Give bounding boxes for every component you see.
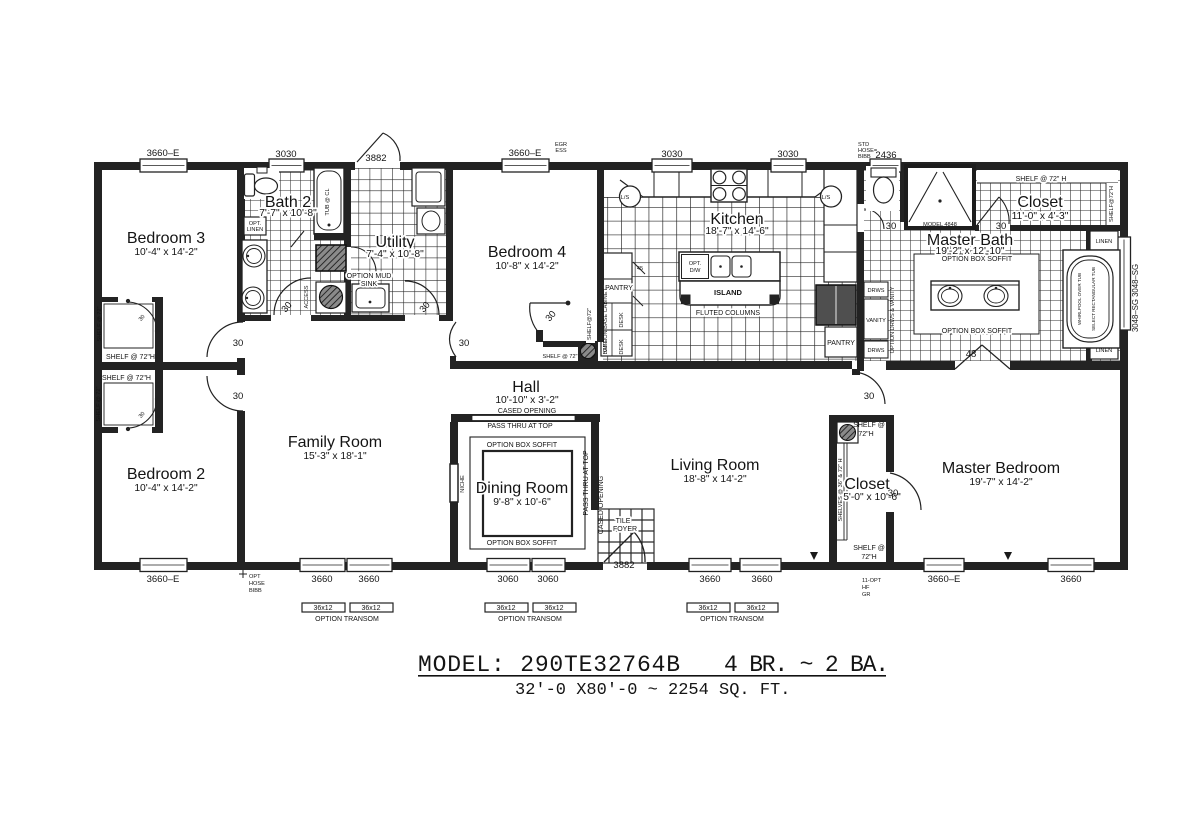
svg-text:OPTION BOX SOFFIT: OPTION BOX SOFFIT — [487, 540, 558, 547]
svg-text:OPT.: OPT. — [689, 261, 702, 267]
svg-text:MODEL 4848: MODEL 4848 — [923, 222, 957, 228]
svg-text:CASED OPENING: CASED OPENING — [498, 408, 556, 415]
svg-text:SHELF @: SHELF @ — [853, 422, 885, 429]
svg-text:NICHE: NICHE — [460, 475, 466, 493]
svg-text:7'-4" x 10'-8": 7'-4" x 10'-8" — [366, 249, 424, 260]
svg-text:SHELF @ 72": SHELF @ 72" — [96, 386, 102, 421]
svg-text:GR: GR — [862, 592, 870, 598]
svg-text:FLUTED COLUMNS: FLUTED COLUMNS — [696, 310, 761, 317]
svg-text:SHELF @ 72"H: SHELF @ 72"H — [106, 354, 155, 361]
svg-text:SELECT RECTANGULAR TUB: SELECT RECTANGULAR TUB — [1091, 267, 1096, 331]
svg-text:ISLAND: ISLAND — [714, 288, 743, 297]
svg-text:72"H: 72"H — [861, 554, 876, 561]
svg-text:BIBB: BIBB — [249, 588, 262, 594]
svg-text:L/S: L/S — [621, 195, 630, 201]
svg-text:SHELF@72"H: SHELF@72"H — [1109, 186, 1115, 222]
svg-text:MODEL: 290TE32764B: MODEL: 290TE32764B — [418, 652, 681, 678]
svg-text:3660: 3660 — [358, 574, 379, 585]
svg-text:36x12: 36x12 — [313, 605, 332, 612]
svg-text:Family Room: Family Room — [288, 434, 382, 451]
svg-text:3660–E: 3660–E — [147, 148, 180, 159]
svg-text:HF: HF — [862, 585, 870, 591]
svg-text:SHELF @ 72": SHELF @ 72" — [97, 306, 103, 341]
svg-text:BIBB: BIBB — [858, 154, 871, 160]
svg-text:Master Bedroom: Master Bedroom — [942, 460, 1060, 477]
svg-text:L/S: L/S — [822, 195, 831, 201]
svg-text:PANTRY: PANTRY — [827, 340, 855, 347]
svg-text:11'-0" x 4'-3": 11'-0" x 4'-3" — [1012, 211, 1069, 222]
svg-text:Closet: Closet — [1017, 194, 1063, 211]
svg-text:CASED OPENING: CASED OPENING — [598, 476, 605, 534]
svg-text:3030: 3030 — [661, 149, 682, 160]
svg-text:3660: 3660 — [311, 574, 332, 585]
svg-text:LINEN: LINEN — [247, 227, 263, 233]
svg-text:ESS: ESS — [555, 148, 566, 154]
svg-text:19'-7" x 14'-2": 19'-7" x 14'-2" — [969, 477, 1033, 488]
svg-text:DRWS: DRWS — [868, 348, 885, 354]
svg-text:30: 30 — [864, 391, 875, 402]
svg-text:30: 30 — [996, 221, 1007, 232]
svg-text:DRWS: DRWS — [868, 288, 885, 294]
svg-text:SHELVES @ 36" & 72" H: SHELVES @ 36" & 72" H — [838, 458, 844, 521]
svg-text:30: 30 — [233, 338, 244, 349]
svg-text:FOYER: FOYER — [613, 526, 637, 533]
svg-text:Closet: Closet — [844, 476, 890, 493]
svg-text:OPT: OPT — [249, 574, 261, 580]
svg-text:72"H: 72"H — [858, 431, 873, 438]
svg-text:OPTION BOX SOFFIT: OPTION BOX SOFFIT — [487, 442, 558, 449]
svg-text:SHELF @ 72" H: SHELF @ 72" H — [1016, 176, 1067, 183]
svg-text:32'-0 X80'-0 ~ 2254 SQ. FT.: 32'-0 X80'-0 ~ 2254 SQ. FT. — [515, 681, 790, 700]
svg-text:36x12: 36x12 — [496, 605, 515, 612]
svg-text:Dining Room: Dining Room — [476, 480, 568, 497]
svg-text:OPTION MUD: OPTION MUD — [347, 273, 392, 280]
svg-text:OPTION BOX SOFFIT: OPTION BOX SOFFIT — [942, 256, 1013, 263]
svg-text:11-OPT: 11-OPT — [862, 578, 882, 584]
svg-text:OPTION TRANSOM: OPTION TRANSOM — [315, 616, 379, 623]
svg-text:3660: 3660 — [1060, 574, 1081, 585]
svg-text:3060: 3060 — [497, 574, 518, 585]
svg-text:ACCESS: ACCESS — [304, 285, 310, 308]
svg-text:36x12: 36x12 — [544, 605, 563, 612]
svg-text:PANTRY: PANTRY — [605, 285, 633, 292]
svg-text:OPTION TRANSOM: OPTION TRANSOM — [700, 616, 764, 623]
svg-text:D/W: D/W — [690, 268, 702, 274]
svg-text:3882: 3882 — [365, 153, 386, 164]
svg-text:OPTION TRANSOM: OPTION TRANSOM — [498, 616, 562, 623]
svg-text:Hall: Hall — [512, 379, 540, 396]
svg-text:Bedroom 4: Bedroom 4 — [488, 244, 566, 261]
svg-text:36x12: 36x12 — [361, 605, 380, 612]
svg-text:3660–E: 3660–E — [928, 574, 961, 585]
svg-text:30: 30 — [888, 488, 899, 499]
svg-text:PASS THRU AT TOP: PASS THRU AT TOP — [583, 450, 590, 516]
svg-text:3882: 3882 — [613, 560, 634, 571]
svg-text:OPTION DRWS & VANITY: OPTION DRWS & VANITY — [890, 286, 896, 353]
svg-text:Bedroom 3: Bedroom 3 — [127, 230, 205, 247]
svg-text:LINEN: LINEN — [1096, 348, 1112, 354]
svg-text:10'-4" x 14'-2": 10'-4" x 14'-2" — [134, 247, 198, 258]
svg-text:LINEN: LINEN — [1096, 239, 1112, 245]
svg-text:3660–E: 3660–E — [509, 148, 542, 159]
svg-text:Living Room: Living Room — [671, 457, 760, 474]
svg-text:30: 30 — [459, 338, 470, 349]
svg-text:3660–E: 3660–E — [147, 574, 180, 585]
svg-text:SINK: SINK — [361, 281, 378, 288]
svg-text:3060: 3060 — [537, 574, 558, 585]
svg-text:TILE: TILE — [616, 518, 631, 525]
svg-text:10'-10" x 3'-2": 10'-10" x 3'-2" — [495, 395, 559, 406]
svg-text:DESK: DESK — [619, 339, 625, 355]
svg-text:30: 30 — [233, 391, 244, 402]
svg-text:30: 30 — [886, 221, 897, 232]
svg-text:3660: 3660 — [699, 574, 720, 585]
svg-text:10'-8" x 14'-2": 10'-8" x 14'-2" — [495, 261, 559, 272]
svg-text:9'-8" x 10'-6": 9'-8" x 10'-6" — [493, 497, 551, 508]
svg-text:3660: 3660 — [751, 574, 772, 585]
svg-text:WHIRLPOOL OVER TUB: WHIRLPOOL OVER TUB — [1077, 273, 1082, 325]
svg-text:18'-7" x 14'-6": 18'-7" x 14'-6" — [705, 226, 769, 237]
svg-text:45: 45 — [637, 266, 643, 272]
svg-text:7'-7" x 10'-8": 7'-7" x 10'-8" — [259, 208, 317, 219]
svg-text:36x12: 36x12 — [698, 605, 717, 612]
svg-text:3030: 3030 — [275, 149, 296, 160]
svg-text:15'-3" x 18'-1": 15'-3" x 18'-1" — [303, 451, 367, 462]
svg-text:3048–SG 3048–SG: 3048–SG 3048–SG — [1131, 264, 1140, 332]
svg-text:48: 48 — [966, 349, 977, 360]
svg-text:2436: 2436 — [875, 150, 896, 161]
svg-text:Bedroom 2: Bedroom 2 — [127, 466, 205, 483]
svg-text:10'-4" x 14'-2": 10'-4" x 14'-2" — [134, 483, 198, 494]
svg-text:4 BR. ~ 2 BA.: 4 BR. ~ 2 BA. — [724, 652, 888, 678]
svg-text:3030: 3030 — [777, 149, 798, 160]
svg-text:SHELF @ 72"H: SHELF @ 72"H — [102, 375, 151, 382]
svg-text:BASE: BASE — [603, 339, 609, 354]
svg-text:PASS THRU AT TOP: PASS THRU AT TOP — [487, 423, 553, 430]
svg-text:VANITY: VANITY — [866, 318, 886, 324]
svg-text:36x12: 36x12 — [746, 605, 765, 612]
svg-text:HOSE: HOSE — [249, 581, 265, 587]
svg-text:SHELF@72": SHELF@72" — [587, 308, 593, 340]
svg-text:18'-8" x 14'-2": 18'-8" x 14'-2" — [683, 474, 747, 485]
svg-text:OPTION BOX SOFFIT: OPTION BOX SOFFIT — [942, 328, 1013, 335]
svg-text:TUB @ CL: TUB @ CL — [325, 188, 331, 215]
svg-text:DESK: DESK — [619, 312, 625, 328]
svg-text:SHELF @ 72": SHELF @ 72" — [542, 354, 577, 360]
svg-text:SHELF @: SHELF @ — [853, 545, 885, 552]
